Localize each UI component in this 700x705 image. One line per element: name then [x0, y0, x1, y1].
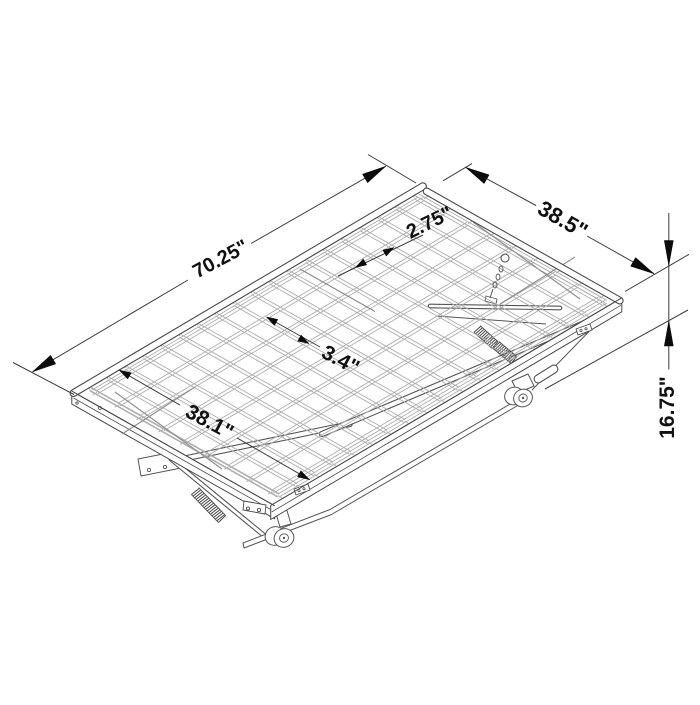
svg-text:16.75": 16.75": [656, 376, 679, 439]
